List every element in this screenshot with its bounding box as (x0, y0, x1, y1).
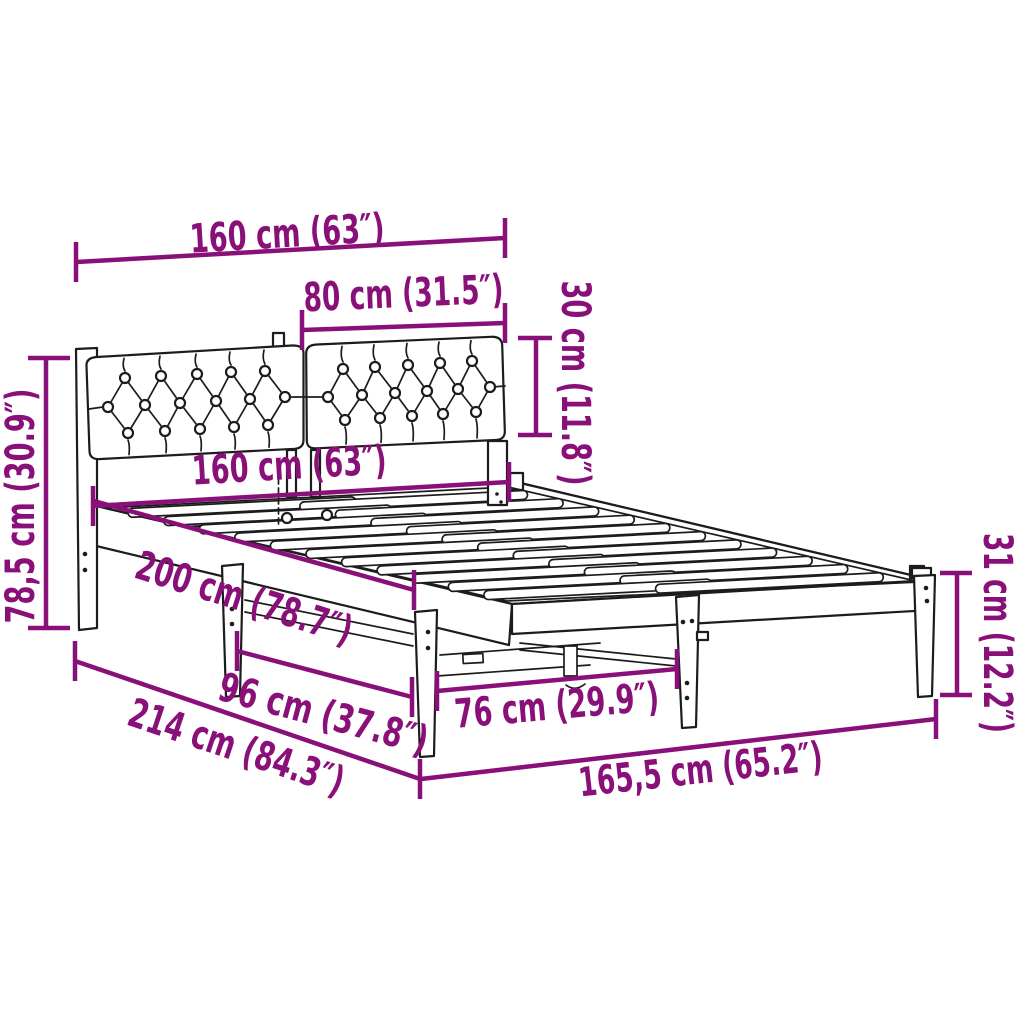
tufting-button (390, 388, 400, 398)
tufting-button (245, 394, 255, 404)
tufting-button (211, 396, 221, 406)
dim-frame-height: 31 cm (12.2″) (974, 533, 1020, 733)
tufting-button (422, 386, 432, 396)
dim-leg-spacing-foot: 76 cm (29.9″) (453, 674, 661, 738)
tufting-button (263, 420, 273, 430)
diagram-canvas: 160 cm (63″) 80 cm (31.5″) 30 cm (11.8″)… (0, 0, 1024, 1024)
tufting-button (485, 382, 495, 392)
leg-bracket (697, 632, 708, 640)
head-rail-knob (282, 513, 292, 523)
tufting-button (175, 398, 185, 408)
tufting-button (435, 358, 445, 368)
tufting-button (120, 373, 130, 383)
tufting-button (453, 384, 463, 394)
tufting-button (195, 424, 205, 434)
dim-cushion-width: 80 cm (31.5″) (303, 267, 505, 322)
tufting-button (226, 367, 236, 377)
bed-dimension-diagram: 160 cm (63″) 80 cm (31.5″) 30 cm (11.8″)… (0, 0, 1024, 1024)
tufting-button (229, 422, 239, 432)
cushion-right (306, 337, 505, 449)
tufting-button (123, 428, 133, 438)
tufting-button (438, 409, 448, 419)
tufting-button (340, 415, 350, 425)
leg-foot-right (914, 575, 935, 697)
tufting-button (471, 407, 481, 417)
tufting-button (192, 369, 202, 379)
tufting-button (407, 411, 417, 421)
dim-headboard-height: 78,5 cm (30.9″) (0, 389, 44, 624)
tufting-button (280, 392, 290, 402)
tufting-button (323, 392, 333, 402)
center-leg (564, 646, 577, 676)
tufting-button (156, 371, 166, 381)
tufting-button (338, 364, 348, 374)
tufting-button (103, 402, 113, 412)
tufting-button (375, 413, 385, 423)
tufting-button (160, 426, 170, 436)
tufting-button (260, 366, 270, 376)
headboard (86, 337, 505, 459)
rail-bracket (463, 653, 483, 663)
tufting-button (357, 390, 367, 400)
dim-headboard-width: 160 cm (63″) (189, 205, 386, 262)
tufting-button (467, 356, 477, 366)
head-rail-knob (322, 510, 332, 520)
tufting-button (403, 360, 413, 370)
dim-cushion-height: 30 cm (11.8″) (552, 281, 598, 486)
tufting-button (370, 362, 380, 372)
headboard-post-tip (273, 333, 284, 347)
leg-foot-middle (676, 595, 699, 728)
dim-bed-width: 160 cm (63″) (191, 437, 388, 494)
tufting-button (140, 400, 150, 410)
